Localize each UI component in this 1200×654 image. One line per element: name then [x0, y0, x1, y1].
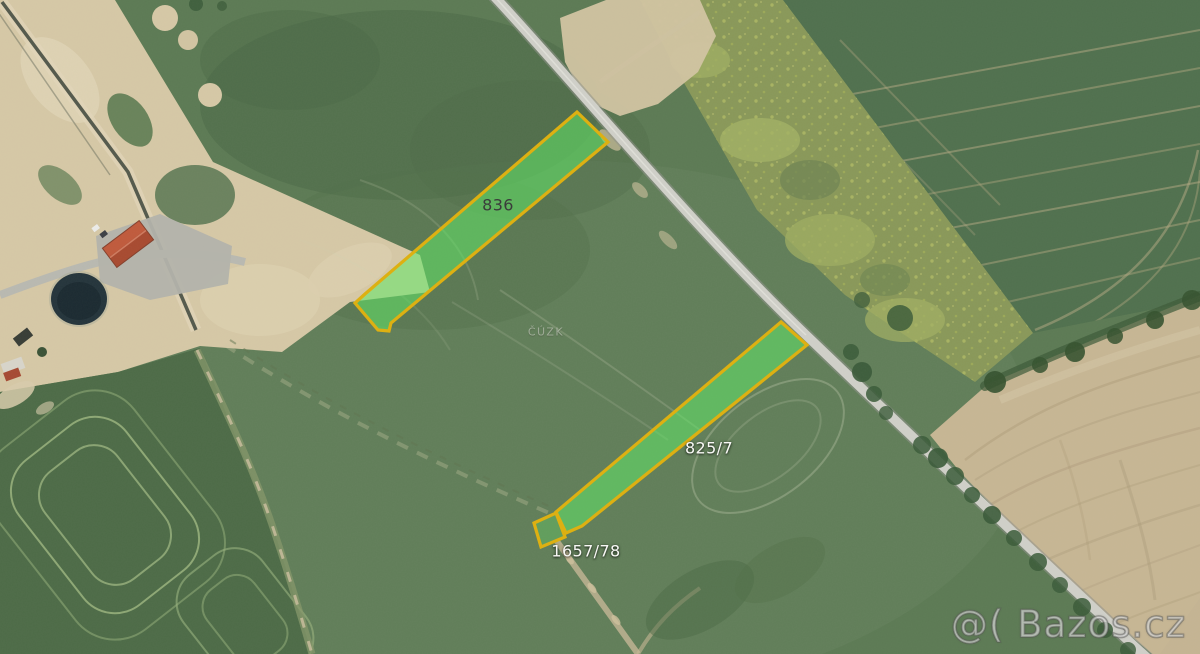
parcel-label-836: 836: [482, 196, 514, 215]
parcel-label-1657-78: 1657/78: [551, 542, 620, 561]
cuzk-watermark: ČÚZK: [528, 326, 564, 339]
aerial-map: 836825/71657/78 ČÚZK @( Bazos.cz: [0, 0, 1200, 654]
parcel-label-825-7: 825/7: [685, 439, 733, 458]
parcel-labels: 836825/71657/78: [0, 0, 1200, 654]
bazos-watermark: @( Bazos.cz: [951, 603, 1186, 646]
